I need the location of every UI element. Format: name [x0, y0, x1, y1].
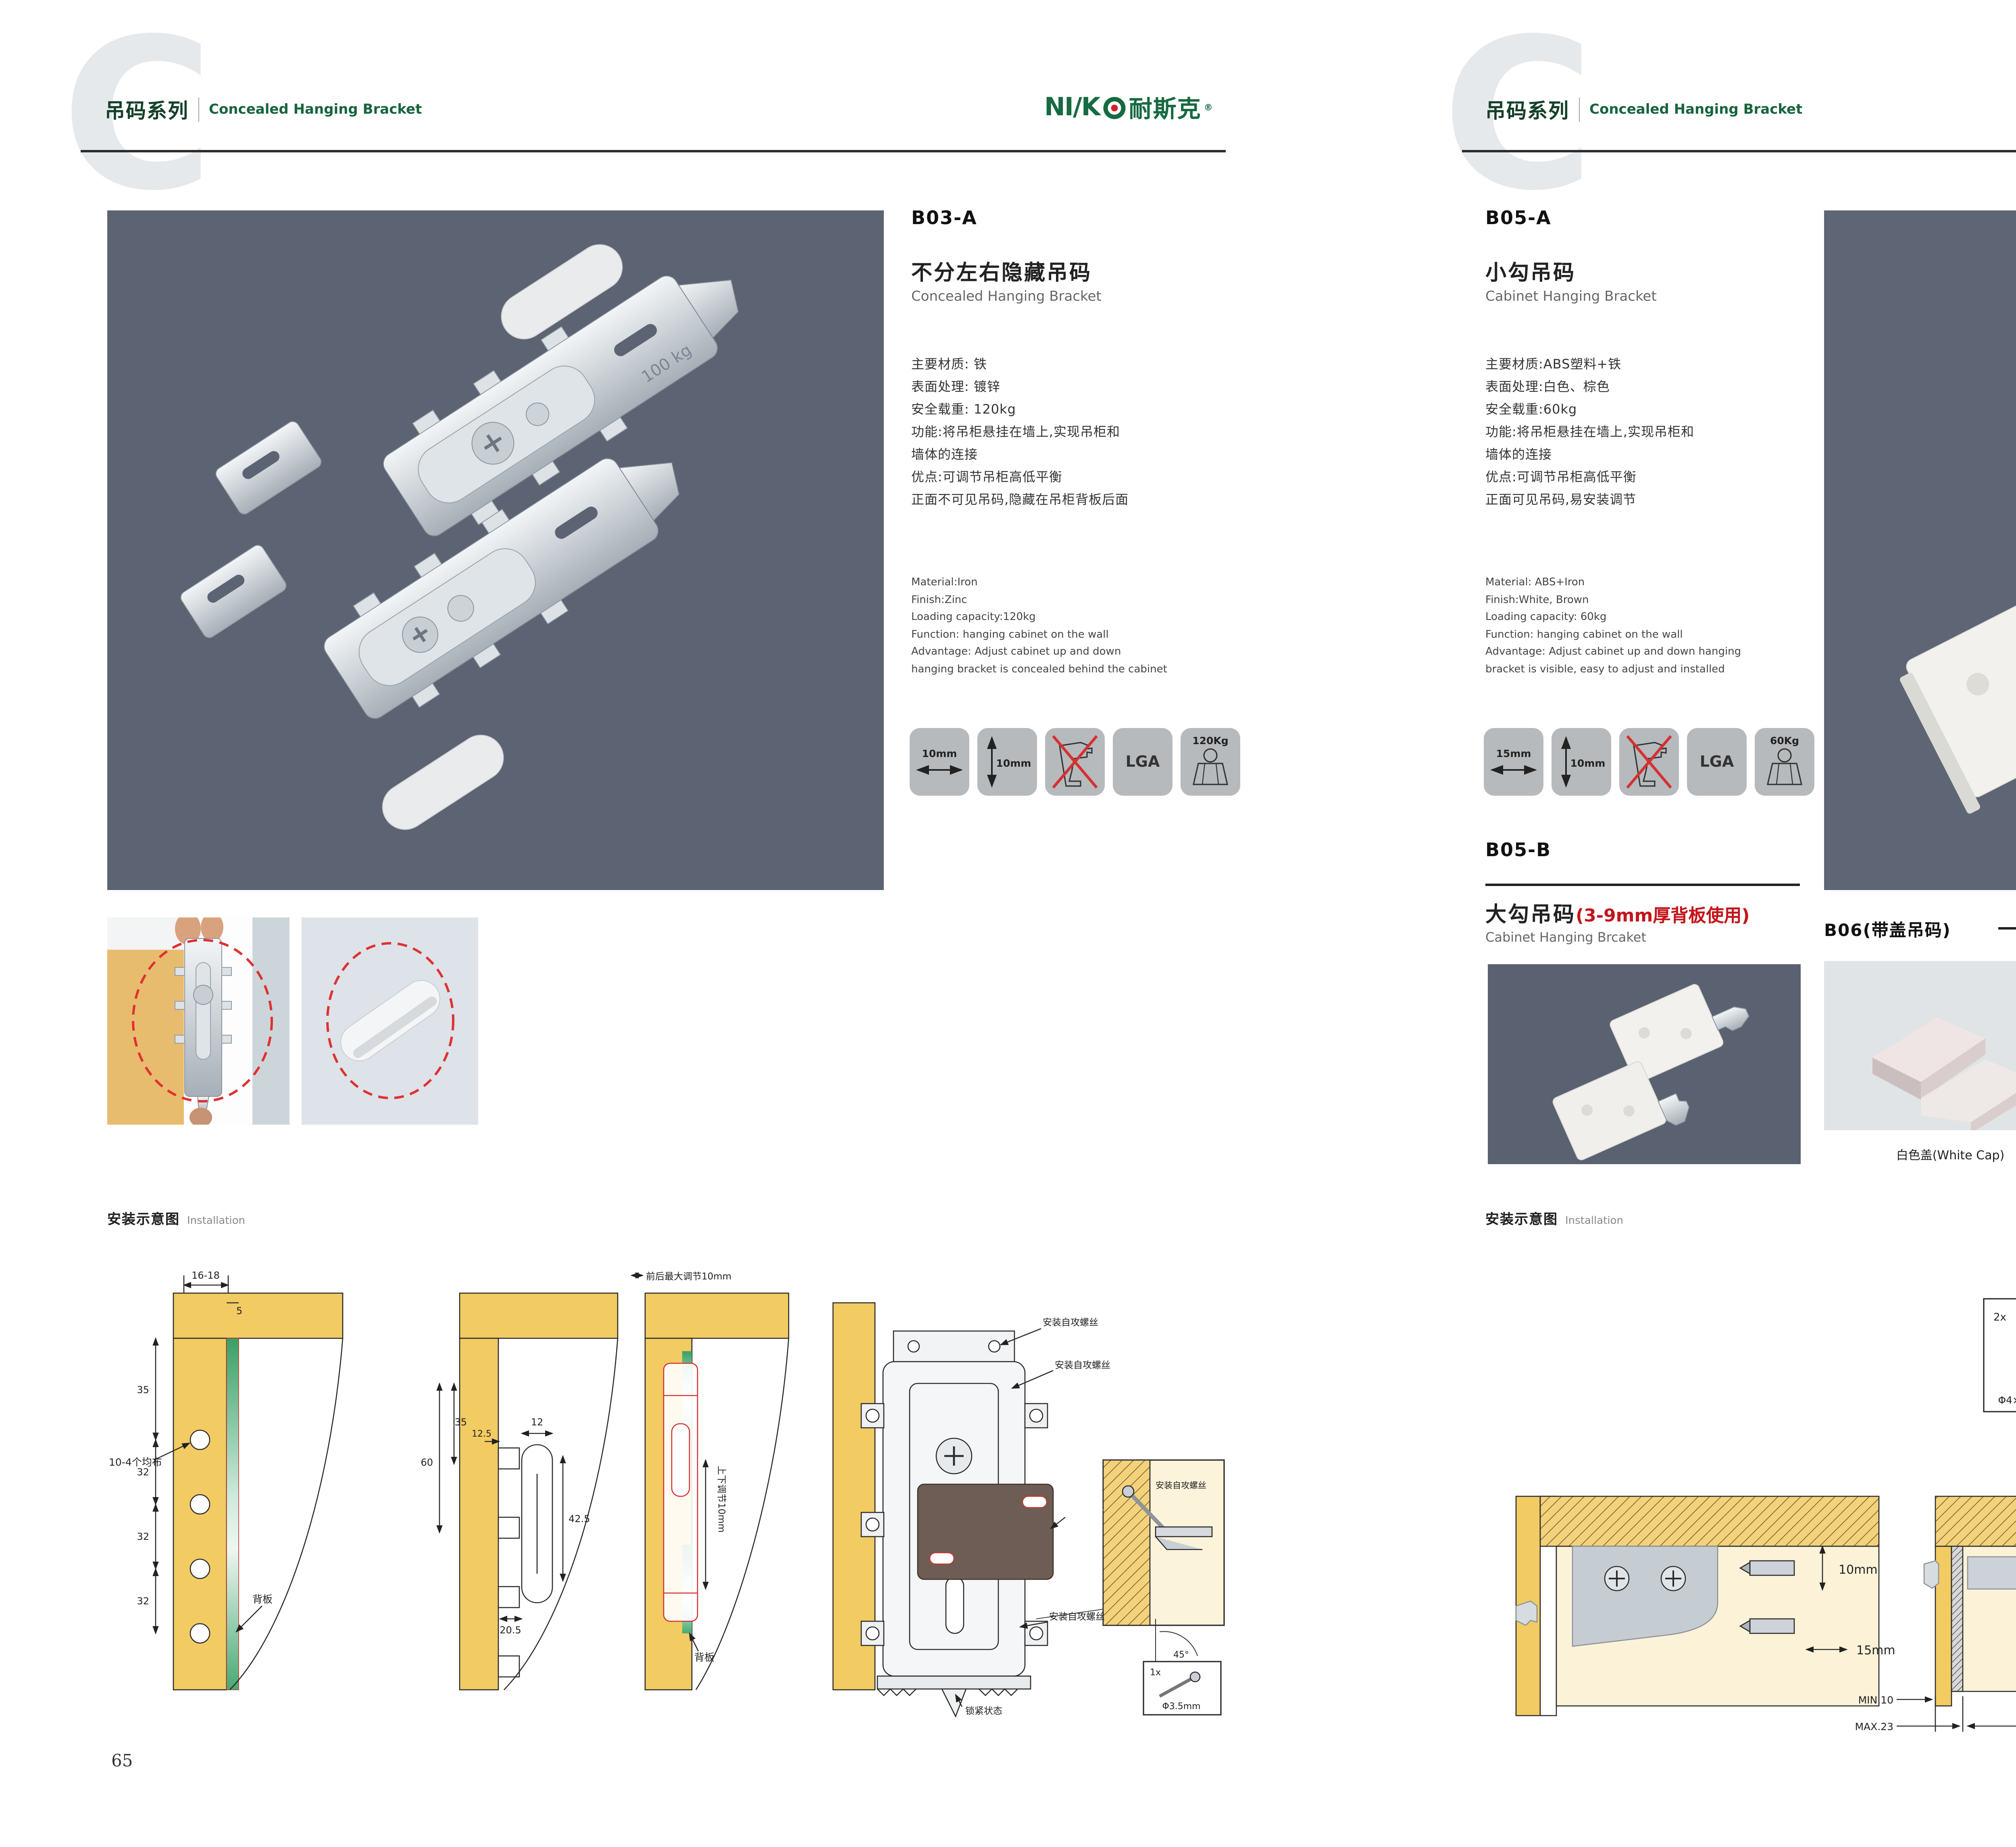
dim-label: 35: [137, 1384, 149, 1396]
install-thumb-photo: [107, 917, 289, 1125]
header-divider: [198, 98, 199, 122]
callout-label: 安装自攻螺丝: [1156, 1481, 1206, 1490]
dim-label: MIN.10: [1858, 1694, 1893, 1706]
series-title-en: Concealed Hanging Bracket: [1589, 102, 1802, 118]
spec-line: 安全载重:60kg: [1485, 398, 1808, 421]
installation-diagram-left: 16-18 5 35 32 32 32 10-4个均布 背板 60 35 12.…: [107, 1254, 1228, 1718]
dim-label: 15mm: [1856, 1643, 1895, 1658]
product-code-b05a: B05-A: [1485, 208, 1552, 229]
callout-label: 专用挂片: [1067, 1507, 1104, 1517]
product-code-b05b: B05-B: [1485, 840, 1551, 861]
load-capacity-icon: 60Kg: [1755, 728, 1814, 796]
callout-label: 锁紧状态: [965, 1706, 1002, 1716]
logo-registered-mark: ®: [1204, 102, 1213, 112]
logo-latin: NI∕K: [1044, 93, 1100, 122]
product-title-en: Concealed Hanging Bracket: [911, 289, 1102, 305]
installation-heading-left: 安装示意图 Installation: [107, 1208, 245, 1228]
spec-line: Loading capacity:120kg: [911, 609, 1242, 626]
spec-line: 功能:将吊柜悬挂在墙上,实现吊柜和: [1485, 421, 1808, 443]
spec-line: bracket is visible, easy to adjust and i…: [1485, 661, 1816, 678]
installation-title-en: Installation: [1565, 1215, 1623, 1227]
spec-line: 主要材质: 铁: [911, 353, 1234, 376]
callout-label: 背板: [252, 1593, 273, 1605]
dim-label: 20.5: [500, 1624, 521, 1636]
feature-icon-row-b03a: 10mm 10mm LGA 120Kg: [910, 728, 1240, 796]
width-adjust-icon: 15mm: [1484, 728, 1543, 796]
series-title-cn: 吊码系列: [1485, 95, 1569, 124]
installation-title-en: Installation: [187, 1215, 245, 1227]
callout-label: 安装自攻螺丝: [1043, 1317, 1098, 1328]
lga-cert-icon: LGA: [1113, 728, 1173, 796]
cap-caption-white: 白色盖(White Cap): [1824, 1146, 2016, 1163]
spec-line: 主要材质:ABS塑料+铁: [1485, 353, 1808, 376]
b06-rule: [1998, 927, 2016, 930]
spec-line: 正面可见吊码,易安装调节: [1485, 489, 1808, 511]
installation-heading-right: 安装示意图 Installation: [1485, 1208, 1623, 1228]
header-rule: [1462, 150, 2016, 152]
spec-line: Finish:White, Brown: [1485, 591, 1816, 609]
b05b-title-main: 大勾吊码: [1485, 903, 1576, 927]
spec-line: Advantage: Adjust cabinet up and down ha…: [1485, 643, 1816, 661]
header-rule: [81, 150, 1226, 152]
width-adjust-icon: 10mm: [910, 728, 969, 796]
screw-size-label: Φ3.5mm: [1162, 1701, 1200, 1712]
spec-line: 优点:可调节吊柜高低平衡: [911, 466, 1234, 489]
dim-label: 12.5: [472, 1429, 492, 1439]
brand-logo: NI∕K 耐斯克 ®: [1044, 90, 1213, 124]
spec-line: hanging bracket is concealed behind the …: [911, 661, 1242, 678]
cover-cap-thumb-photo: [302, 917, 478, 1125]
series-title-en: Concealed Hanging Bracket: [209, 102, 422, 118]
product-title-cn: 大勾吊码(3-9mm厚背板使用): [1485, 898, 1749, 928]
product-title-cn: 不分左右隐藏吊码: [911, 256, 1092, 286]
page-header-right: 吊码系列 Concealed Hanging Bracket: [1485, 95, 1802, 124]
spec-line: 墙体的连接: [1485, 443, 1808, 466]
product-code-b03a: B03-A: [911, 208, 977, 229]
installation-title-cn: 安装示意图: [107, 1208, 180, 1228]
load-capacity-icon: 120Kg: [1181, 728, 1240, 796]
spec-line: 表面处理:白色、棕色: [1485, 376, 1808, 398]
dim-label: 32: [137, 1531, 149, 1542]
height-adjust-icon: 10mm: [1552, 728, 1611, 796]
product-title-cn: 小勾吊码: [1485, 256, 1576, 286]
b06-section-title: B06(带盖吊码): [1824, 917, 1951, 942]
b05b-rule: [1485, 884, 1800, 886]
page-number-left: 65: [111, 1751, 133, 1770]
spec-line: Finish:Zinc: [911, 591, 1242, 609]
logo-o-icon: [1102, 95, 1127, 119]
installation-diagram-right: 10mm 15mm 2x Φ4×30mm MIN.10 MAX.23 58 18…: [1484, 1254, 2016, 1746]
product-specs-cn: 主要材质:ABS塑料+铁 表面处理:白色、棕色 安全载重:60kg 功能:将吊柜…: [1485, 353, 1808, 511]
dim-label: 60: [421, 1457, 433, 1468]
product-photo-b03a: 100 kg: [107, 210, 884, 890]
series-title-cn: 吊码系列: [105, 95, 189, 124]
dim-label: 16-18: [192, 1270, 220, 1281]
height-adjust-icon: 10mm: [977, 728, 1037, 796]
spec-line: 安全载重: 120kg: [911, 398, 1234, 421]
spec-line: 正面不可见吊码,隐藏在吊柜背板后面: [911, 489, 1234, 511]
dim-label: MAX.23: [1855, 1721, 1893, 1733]
catalog-spread: C 吊码系列 Concealed Hanging Bracket NI∕K 耐斯…: [0, 0, 2016, 1847]
spec-line: Material: ABS+Iron: [1485, 574, 1816, 591]
no-drill-icon: [1619, 728, 1679, 796]
spec-line: Function: hanging cabinet on the wall: [911, 626, 1242, 643]
lga-label: LGA: [1113, 728, 1173, 796]
product-photo-b05b: [1488, 964, 1801, 1164]
spec-line: Loading capacity: 60kg: [1485, 609, 1816, 626]
product-title-en: Cabinet Hanging Bracket: [1485, 289, 1657, 305]
product-photo-b05a: [1824, 210, 2016, 890]
dim-label: 10mm: [1839, 1563, 1878, 1577]
lga-label: LGA: [1687, 728, 1747, 796]
spec-line: Advantage: Adjust cabinet up and down: [911, 643, 1242, 661]
dim-label: 12: [531, 1416, 544, 1428]
angle-label: 45°: [1173, 1650, 1189, 1660]
installation-title-cn: 安装示意图: [1485, 1208, 1558, 1228]
spec-line: 优点:可调节吊柜高低平衡: [1485, 466, 1808, 489]
spec-line: 墙体的连接: [911, 443, 1234, 466]
header-divider: [1579, 98, 1580, 122]
dim-label: 32: [137, 1466, 149, 1478]
product-specs-en: Material:Iron Finish:Zinc Loading capaci…: [911, 574, 1242, 678]
cap-photo-white: [1824, 961, 2016, 1130]
callout-label: 背板: [694, 1651, 714, 1663]
dim-label: 42.5: [569, 1513, 590, 1525]
callout-label: 前后最大调节10mm: [646, 1271, 731, 1282]
dim-label: 35: [454, 1416, 467, 1428]
callout-label: 安装自攻螺丝: [1049, 1612, 1105, 1622]
dim-label: 32: [137, 1595, 149, 1607]
spec-line: 功能:将吊柜悬挂在墙上,实现吊柜和: [911, 421, 1234, 443]
b05b-title-note: (3-9mm厚背板使用): [1576, 906, 1749, 926]
callout-label: 上下调节10mm: [716, 1466, 727, 1533]
logo-cn: 耐斯克: [1129, 90, 1202, 124]
qty-label: 2x: [1993, 1311, 2006, 1323]
page-header-left: 吊码系列 Concealed Hanging Bracket: [105, 95, 422, 124]
callout-label: 10-4个均布: [109, 1456, 162, 1468]
feature-icon-row-b05a: 15mm 10mm LGA 60Kg: [1484, 728, 1814, 796]
product-title-en: Cabinet Hanging Brcaket: [1485, 930, 1646, 945]
qty-label: 1x: [1150, 1668, 1161, 1678]
spec-line: Function: hanging cabinet on the wall: [1485, 626, 1816, 643]
spec-line: 表面处理: 镀锌: [911, 376, 1234, 398]
spec-line: Material:Iron: [911, 574, 1242, 591]
callout-label: 安装自攻螺丝: [1055, 1360, 1110, 1371]
dim-label: 5: [236, 1305, 242, 1317]
lga-cert-icon: LGA: [1687, 728, 1747, 796]
product-specs-cn: 主要材质: 铁 表面处理: 镀锌 安全载重: 120kg 功能:将吊柜悬挂在墙上…: [911, 353, 1234, 511]
no-drill-icon: [1045, 728, 1105, 796]
screw-size-label: Φ4×30mm: [1998, 1394, 2016, 1406]
product-specs-en: Material: ABS+Iron Finish:White, Brown L…: [1485, 574, 1816, 678]
